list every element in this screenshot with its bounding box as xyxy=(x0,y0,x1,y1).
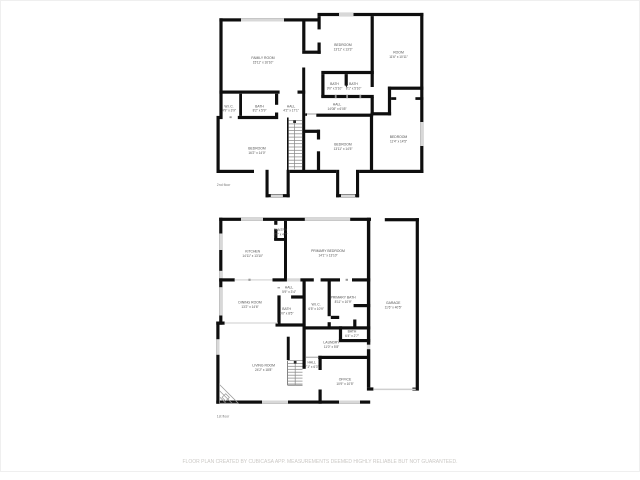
svg-text:HALL: HALL xyxy=(287,104,296,108)
svg-text:24’2” x 18’8”: 24’2” x 18’8” xyxy=(255,368,272,372)
svg-text:BEDROOM: BEDROOM xyxy=(248,147,266,151)
svg-text:GARAGE: GARAGE xyxy=(386,301,401,305)
svg-text:10’9” x 10’5”: 10’9” x 10’5” xyxy=(336,382,353,386)
svg-text:OFFICE: OFFICE xyxy=(339,378,352,382)
svg-text:6’5” x 10’9”: 6’5” x 10’9” xyxy=(308,307,324,311)
svg-text:PRIMARY BATH: PRIMARY BATH xyxy=(331,296,357,300)
svg-text:13’2” x 14’6”: 13’2” x 14’6” xyxy=(241,305,258,309)
svg-text:BATH: BATH xyxy=(330,82,339,86)
svg-text:9’0” x 5’10”: 9’0” x 5’10” xyxy=(327,86,343,90)
svg-text:ROOM: ROOM xyxy=(393,51,404,55)
svg-text:11’6” x 40’5”: 11’6” x 40’5” xyxy=(385,305,402,309)
svg-text:14’1” x 13’10”: 14’1” x 13’10” xyxy=(318,253,337,257)
svg-text:5’0” x 8’5”: 5’0” x 8’5” xyxy=(280,311,294,315)
svg-text:FLOOR PLAN CREATED BY CUBICASA: FLOOR PLAN CREATED BY CUBICASA APP. MEAS… xyxy=(183,459,458,465)
svg-text:W.I.C.: W.I.C. xyxy=(224,104,233,108)
svg-text:4’9” x 3’9”: 4’9” x 3’9” xyxy=(222,109,236,113)
svg-text:BATH: BATH xyxy=(348,330,357,334)
svg-text:DINING ROOM: DINING ROOM xyxy=(238,301,262,305)
svg-text:8’2” x 5’9”: 8’2” x 5’9” xyxy=(253,109,267,113)
svg-text:BEDROOM: BEDROOM xyxy=(334,143,352,147)
svg-text:HALL: HALL xyxy=(285,286,294,290)
svg-text:BATH: BATH xyxy=(349,82,358,86)
svg-text:1st floor: 1st floor xyxy=(217,414,230,418)
svg-text:KITCHEN: KITCHEN xyxy=(245,250,260,254)
svg-text:HALL: HALL xyxy=(333,103,342,107)
svg-text:BATH: BATH xyxy=(255,104,264,108)
svg-text:11’4” x 14’5”: 11’4” x 14’5” xyxy=(390,139,407,143)
svg-text:14’08” x 6’05”: 14’08” x 6’05” xyxy=(327,107,346,111)
svg-text:BEDROOM: BEDROOM xyxy=(390,135,408,139)
svg-text:PRIMARY BEDROOM: PRIMARY BEDROOM xyxy=(311,249,345,253)
svg-text:FAMILY ROOM: FAMILY ROOM xyxy=(251,56,274,60)
svg-text:HALL: HALL xyxy=(307,361,316,365)
svg-text:BATH: BATH xyxy=(282,307,291,311)
svg-text:BEDROOM: BEDROOM xyxy=(334,43,352,47)
svg-text:13’11” x 14’5”: 13’11” x 14’5” xyxy=(334,147,353,151)
svg-text:7’1” x 6’3”: 7’1” x 6’3” xyxy=(305,365,319,369)
svg-text:11’6” x 10’11”: 11’6” x 10’11” xyxy=(389,55,408,59)
svg-text:8’1” x 5’10”: 8’1” x 5’10” xyxy=(346,86,362,90)
svg-text:16’2” x 14’0”: 16’2” x 14’0” xyxy=(248,151,265,155)
svg-text:11’0” x 5’8”: 11’0” x 5’8” xyxy=(324,345,339,349)
svg-text:PANTRY: PANTRY xyxy=(274,228,288,232)
svg-text:2nd floor: 2nd floor xyxy=(217,183,231,187)
svg-text:14’11” x 13’10”: 14’11” x 13’10” xyxy=(242,254,263,258)
svg-text:15’11” x 16’10”: 15’11” x 16’10” xyxy=(253,60,274,64)
svg-text:4’2” x 17’1”: 4’2” x 17’1” xyxy=(283,109,299,113)
svg-text:6’4” x 2’7”: 6’4” x 2’7” xyxy=(345,334,359,338)
svg-text:W.I.C.: W.I.C. xyxy=(311,303,320,307)
svg-text:8’11” x 10’9”: 8’11” x 10’9” xyxy=(335,300,352,304)
svg-text:LIVING ROOM: LIVING ROOM xyxy=(252,364,275,368)
svg-text:5’9” x 3’4”: 5’9” x 3’4” xyxy=(282,290,296,294)
svg-text:3’1” x 4’7”: 3’1” x 4’7” xyxy=(274,232,288,236)
svg-text:13’11” x 13’3”: 13’11” x 13’3” xyxy=(334,47,353,51)
svg-text:LAUNDRY: LAUNDRY xyxy=(323,341,340,345)
